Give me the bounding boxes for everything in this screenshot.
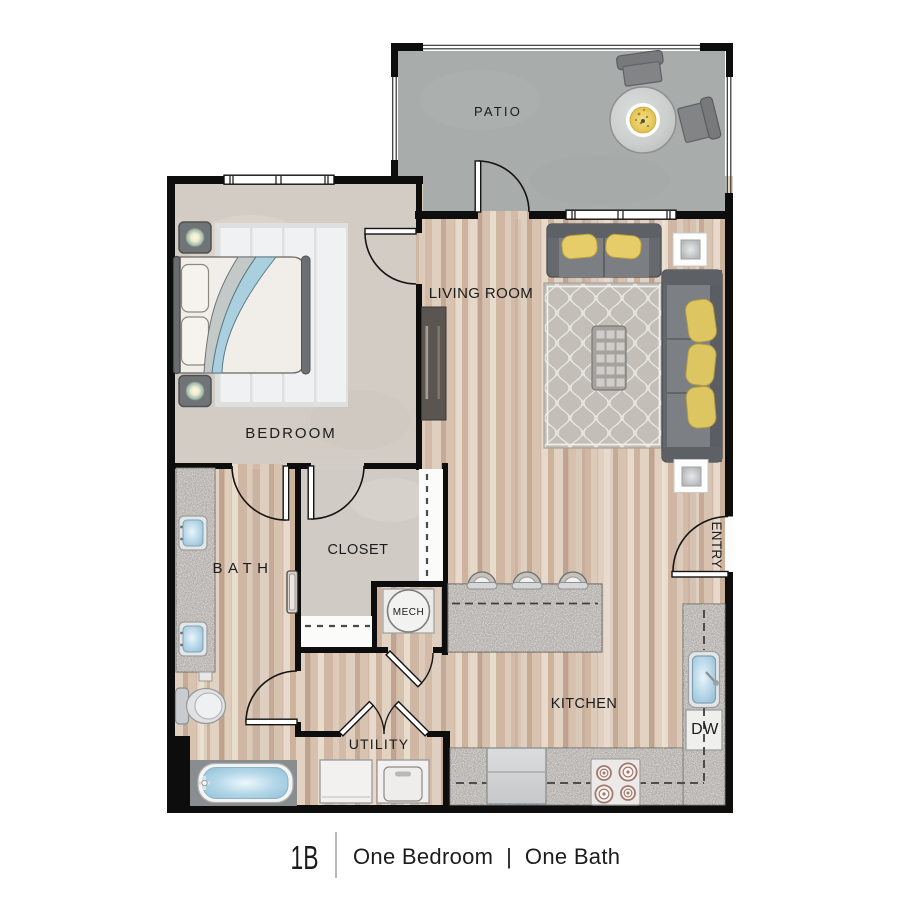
svg-text:KITCHEN: KITCHEN [551, 696, 617, 712]
svg-text:1B: 1B [291, 839, 319, 876]
svg-text:UTILITY: UTILITY [349, 736, 410, 752]
svg-text:ENTRY: ENTRY [709, 521, 724, 568]
svg-text:BEDROOM: BEDROOM [245, 425, 337, 442]
svg-text:DW: DW [691, 721, 719, 738]
svg-text:CLOSET: CLOSET [327, 542, 388, 558]
svg-text:LIVING ROOM: LIVING ROOM [429, 285, 533, 302]
svg-text:BATH: BATH [213, 560, 274, 577]
svg-text:One Bedroom | One Bath: One Bedroom | One Bath [353, 844, 620, 869]
svg-text:PATIO: PATIO [474, 104, 522, 119]
svg-text:MECH: MECH [393, 607, 424, 618]
